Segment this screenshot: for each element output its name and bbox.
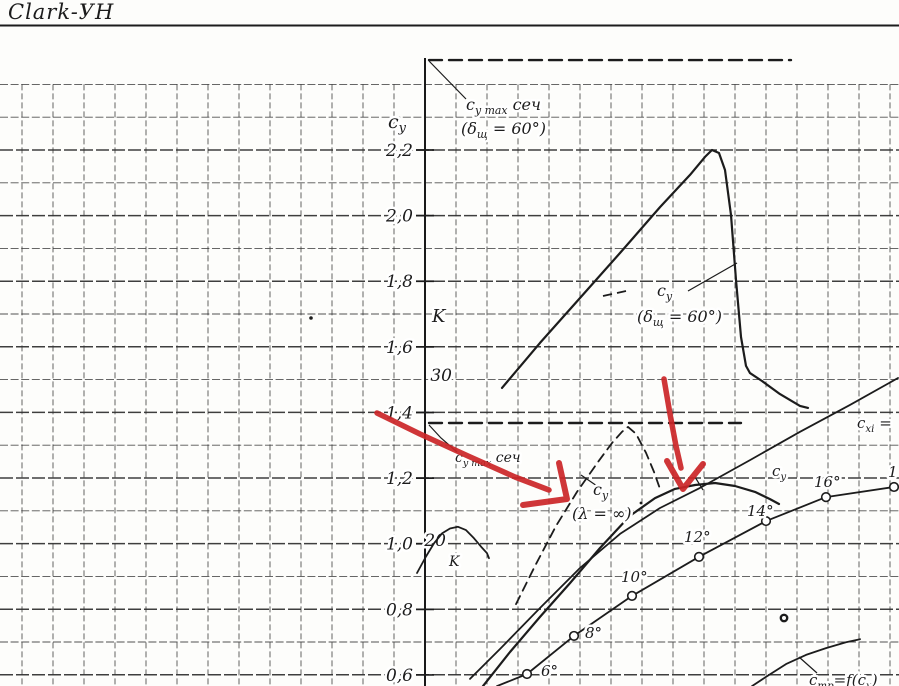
angle-marker-label: 12° <box>684 528 711 546</box>
angle-marker-label: 16° <box>814 473 841 491</box>
scan-speck <box>640 502 643 505</box>
scanned-chart-page: Clark-УН 2,22,01,81,61,41,21,00,80,6 302… <box>0 0 899 686</box>
angle-marker-circle <box>822 493 831 502</box>
cy-tick-label: 0,8 <box>386 600 413 620</box>
cy-tick-label: 1,0 <box>386 535 413 555</box>
lambda-label-2: (λ = ∞) <box>572 504 632 523</box>
cy-tick-label: 2,0 <box>385 207 413 227</box>
angle-marker-circle <box>695 553 704 562</box>
angle-marker-circle <box>628 592 637 601</box>
cy-axis-tick-labels: 2,22,01,81,61,41,21,00,80,6 <box>385 141 413 686</box>
chart-canvas: Clark-УН 2,22,01,81,61,41,21,00,80,6 302… <box>0 0 899 686</box>
paper-background <box>0 0 899 686</box>
k-axis-title: K <box>431 306 447 327</box>
cymax-top-line2: (δщ = 60°) <box>461 119 546 141</box>
angle-marker-circle <box>523 670 532 679</box>
flap-curve-label-2: (δщ = 60°) <box>637 307 722 329</box>
scan-speck <box>309 316 313 320</box>
angle-marker-label: 14° <box>747 502 774 520</box>
cy-tick-label: 0,6 <box>386 666 413 686</box>
angle-marker-circle <box>570 632 579 641</box>
angle-marker-label: 1 <box>888 463 898 481</box>
cxi-label: cxi = <box>857 414 892 435</box>
cy-tick-label: 1,2 <box>386 469 413 489</box>
cy-tick-label: 2,2 <box>385 141 413 161</box>
cy-tick-label: 1,8 <box>386 272 413 292</box>
k-tick-label: 30 <box>430 366 452 386</box>
angle-marker-label: 10° <box>621 568 648 586</box>
angle-marker-label: 6° <box>541 662 558 680</box>
angle-marker-label: 8° <box>585 624 602 642</box>
figure-title: Clark-УН <box>8 0 114 24</box>
angle-marker-circle <box>890 483 899 492</box>
k-small-label: K <box>448 554 461 570</box>
cy-tick-label: 1,6 <box>386 338 413 358</box>
